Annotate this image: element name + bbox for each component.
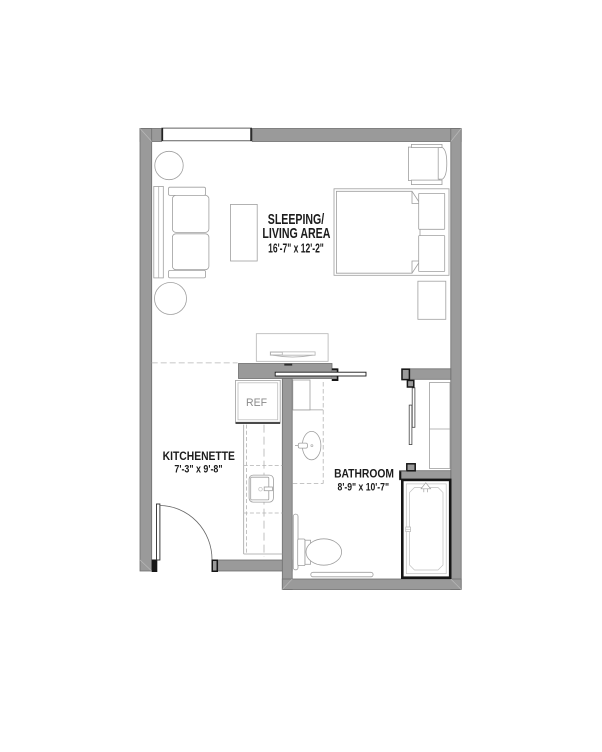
- svg-text:BATHROOM: BATHROOM: [334, 466, 394, 480]
- svg-text:KITCHENETTE: KITCHENETTE: [163, 449, 235, 463]
- svg-text:REF: REF: [246, 397, 267, 409]
- svg-text:16'-7" x 12'-2": 16'-7" x 12'-2": [268, 242, 324, 256]
- svg-text:8'-9" x 10'-7": 8'-9" x 10'-7": [338, 482, 390, 494]
- svg-text:LIVING AREA: LIVING AREA: [262, 225, 330, 242]
- svg-text:7'-3" x 9'-8": 7'-3" x 9'-8": [174, 463, 222, 475]
